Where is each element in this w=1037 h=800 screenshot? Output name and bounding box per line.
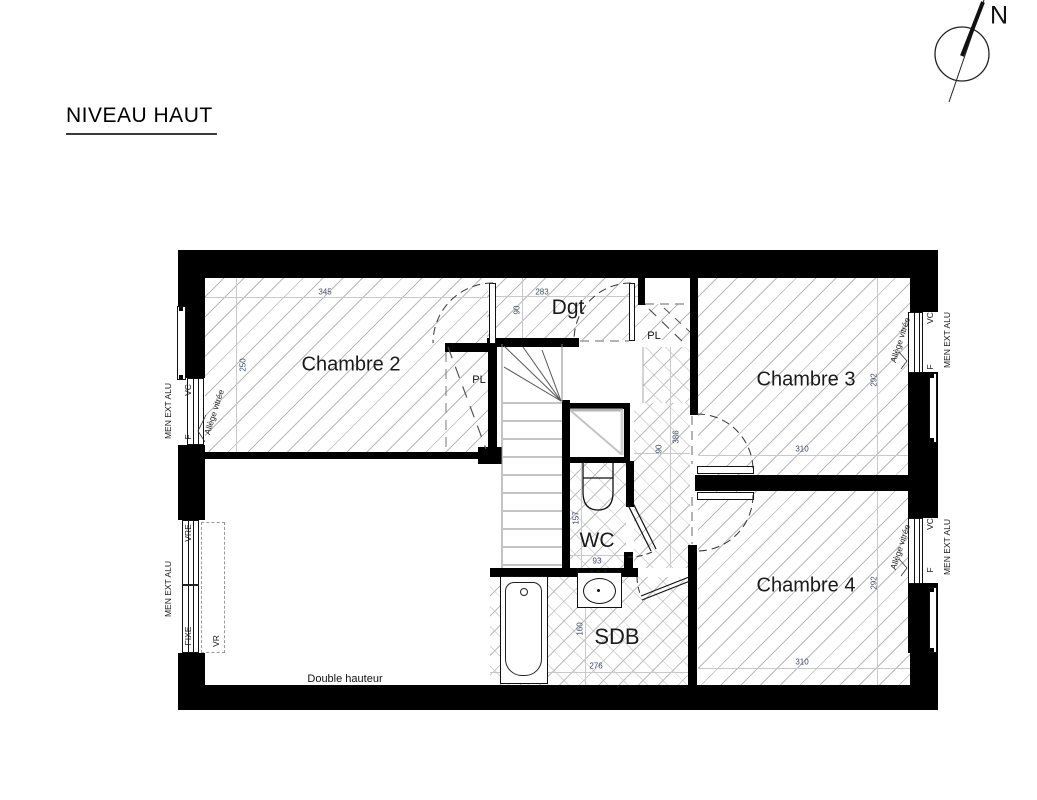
hallway-floor-lower: [634, 403, 690, 568]
wall-dgt-south: [487, 338, 579, 347]
wall-exterior-left: [178, 445, 205, 520]
room-label-dgt: Dgt: [552, 296, 585, 320]
dim-hallway-length: 386: [672, 430, 681, 443]
window-label-menuiserie: MEN EXT ALU: [942, 312, 952, 368]
rail-end-square: [930, 374, 934, 378]
bathtub-basin: [505, 582, 542, 676]
wall-wc-east: [626, 461, 634, 507]
dim-wc-width: 93: [593, 557, 602, 566]
room-label-chambre4: Chambre 4: [757, 575, 856, 598]
dim-line: [698, 668, 910, 669]
floor-plan-canvas: NIVEAU HAUT: [0, 0, 1037, 800]
north-label: N: [990, 2, 1008, 31]
wall-exterior-bottom: [178, 685, 938, 710]
window-label-vre: VRE: [183, 524, 193, 541]
wall-chambre3-west: [690, 278, 698, 415]
dim-hallway-width: 90: [655, 445, 664, 454]
dim-line: [236, 278, 237, 452]
washbasin-drain: [597, 589, 600, 592]
page-title: NIVEAU HAUT: [66, 104, 217, 135]
closet2-shelf: [645, 278, 690, 304]
wall-stair-west: [488, 343, 497, 453]
dim-line: [670, 347, 671, 568]
door-leaf-dgt: [629, 283, 635, 341]
dim-chambre3-width: 310: [795, 445, 808, 454]
window-divider: [182, 584, 199, 586]
window-label-vc: VC: [925, 518, 935, 530]
window-shutter-rail: [929, 373, 937, 443]
wall-exterior-left: [178, 250, 205, 306]
dim-chambre4-height: 292: [870, 576, 879, 589]
dim-line: [522, 278, 523, 339]
closet-label-pl1: PL: [472, 374, 485, 386]
dim-dgt-width: 283: [535, 288, 548, 297]
door-leaf-chambre3: [697, 466, 754, 474]
dim-chambre2-width: 345: [318, 288, 331, 297]
room-label-chambre2: Chambre 2: [302, 354, 401, 377]
rail-end-square: [930, 648, 934, 652]
window-label-menuiserie: MEN EXT ALU: [163, 383, 173, 439]
wall-exterior-right: [910, 653, 938, 710]
wall-exterior-right: [910, 250, 938, 312]
dim-dgt-height: 90: [513, 306, 522, 315]
wall-exterior-top: [178, 250, 938, 278]
dim-sdb-height: 160: [576, 622, 585, 635]
dim-sdb-width: 276: [589, 662, 602, 671]
window-label-f: F: [925, 567, 935, 572]
roller-shutter-dashed-box: [201, 522, 225, 653]
bathtub-drain: [520, 588, 528, 596]
faucet-dot: [597, 570, 600, 573]
window-label-menuiserie: MEN EXT ALU: [163, 561, 173, 617]
window-shutter-rail: [177, 306, 186, 380]
room-label-double-hauteur: Double hauteur: [307, 673, 382, 685]
window-label-vc: VC: [183, 384, 193, 396]
window-shutter-rail: [929, 587, 937, 653]
faucet-dot: [590, 570, 593, 573]
hallway-floor-upper: [643, 347, 690, 403]
dim-line: [698, 455, 910, 456]
window-label-vc: VC: [925, 312, 935, 324]
wall-chambre2-south: [205, 452, 481, 459]
washbasin: [577, 572, 622, 608]
room-label-chambre3: Chambre 3: [757, 369, 856, 392]
wall-exterior-left: [178, 653, 205, 710]
window-label-menuiserie: MEN EXT ALU: [942, 519, 952, 575]
dim-chambre4-width: 310: [795, 658, 808, 667]
room-label-sdb: SDB: [594, 624, 639, 650]
faucet-dot: [604, 570, 607, 573]
dim-chambre2-height: 250: [239, 358, 248, 371]
roof-window: [564, 403, 630, 463]
north-compass-circle: [935, 27, 989, 81]
dim-wc-height: 157: [572, 511, 581, 524]
dim-line: [205, 297, 488, 298]
rail-end-square: [179, 375, 183, 379]
dim-chambre3-height: 292: [870, 373, 879, 386]
door-leaf-chambre4: [697, 492, 754, 500]
wall-wc-east-stub: [624, 552, 633, 568]
bathtub: [500, 576, 548, 684]
room-label-wc: WC: [580, 529, 615, 553]
window-label-vr: VR: [211, 635, 221, 647]
wall-chambre4-west: [688, 545, 697, 686]
rail-end-square: [930, 438, 934, 442]
window-label-f: F: [925, 364, 935, 369]
rail-end-square: [179, 307, 183, 311]
wall-exterior-left: [186, 306, 205, 378]
closet-label-pl2: PL: [647, 330, 660, 342]
wall-chambre3-chambre4: [695, 475, 910, 491]
door-leaf-chambre2: [489, 283, 496, 344]
window-label-fixe: FIXE: [183, 627, 193, 646]
rail-end-square: [930, 588, 934, 592]
window-label-f: F: [183, 434, 193, 439]
